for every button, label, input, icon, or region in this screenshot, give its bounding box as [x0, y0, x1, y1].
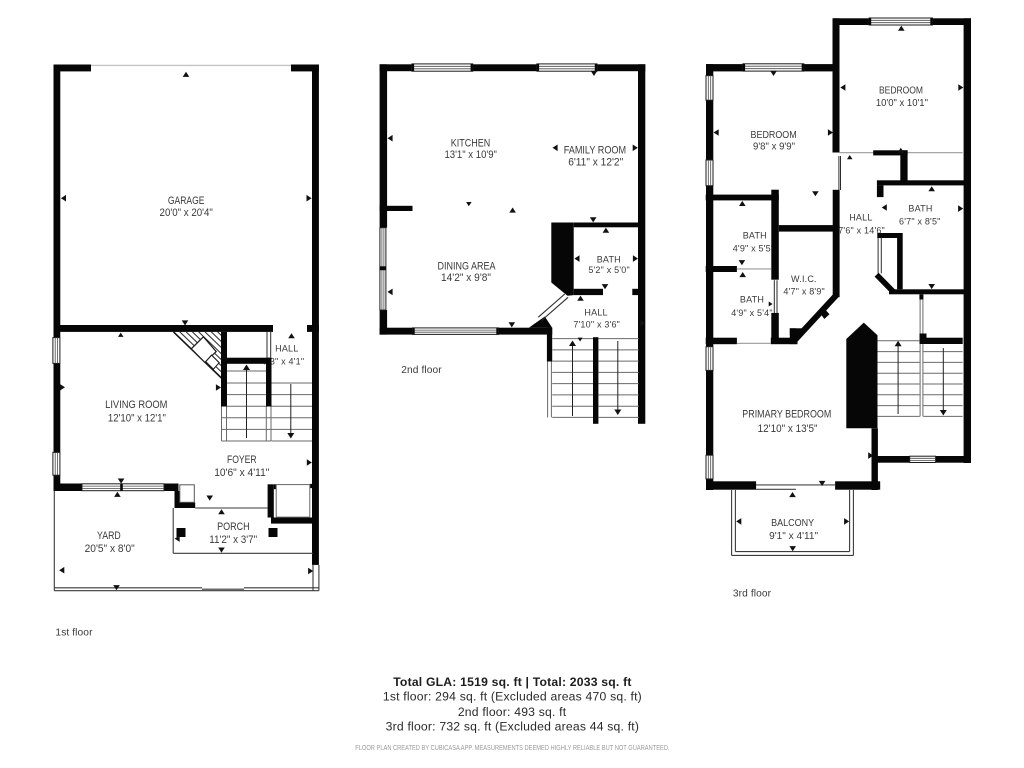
svg-text:GARAGE: GARAGE — [168, 195, 205, 207]
svg-text:4'7" x 8'9": 4'7" x 8'9" — [783, 287, 825, 297]
svg-text:PRIMARY BEDROOM: PRIMARY BEDROOM — [742, 408, 831, 420]
svg-text:6'7" x 8'5": 6'7" x 8'5" — [899, 217, 941, 227]
svg-text:KITCHEN: KITCHEN — [451, 138, 490, 150]
svg-text:FAMILY ROOM: FAMILY ROOM — [564, 145, 626, 157]
svg-text:7'10" x 3'6": 7'10" x 3'6" — [573, 320, 620, 330]
svg-text:Total GLA: 1519 sq. ft | Total: Total GLA: 1519 sq. ft | Total: 2033 sq.… — [393, 675, 631, 689]
svg-text:3rd floor: 3rd floor — [733, 589, 772, 600]
svg-text:BATH: BATH — [740, 295, 764, 305]
svg-text:1st floor: 294 sq. ft (Exclude: 1st floor: 294 sq. ft (Excluded areas 47… — [383, 689, 642, 703]
svg-text:14'2" x 9'8": 14'2" x 9'8" — [441, 272, 491, 284]
svg-text:4'9" x 5'5": 4'9" x 5'5" — [733, 244, 775, 254]
svg-text:BEDROOM: BEDROOM — [751, 130, 797, 141]
svg-text:1st floor: 1st floor — [55, 628, 93, 639]
svg-text:FOYER: FOYER — [227, 454, 257, 466]
svg-text:BATH: BATH — [597, 255, 621, 265]
svg-text:W.I.C.: W.I.C. — [791, 274, 817, 284]
svg-text:BALCONY: BALCONY — [771, 518, 814, 529]
svg-text:HALL: HALL — [849, 212, 872, 222]
svg-text:BATH: BATH — [743, 231, 767, 241]
svg-text:BEDROOM: BEDROOM — [879, 86, 923, 97]
svg-text:13'1" x 10'9": 13'1" x 10'9" — [444, 149, 497, 161]
svg-text:5'2" x 5'0": 5'2" x 5'0" — [588, 265, 630, 275]
svg-text:12'10" x 13'5": 12'10" x 13'5" — [758, 423, 818, 435]
svg-text:10'6" x 4'11": 10'6" x 4'11" — [214, 467, 269, 479]
svg-text:DINING AREA: DINING AREA — [438, 260, 497, 272]
svg-text:FLOOR PLAN CREATED BY CUBICASA: FLOOR PLAN CREATED BY CUBICASA APP. MEAS… — [355, 743, 669, 752]
svg-text:10'0" x 10'1": 10'0" x 10'1" — [876, 98, 928, 109]
svg-text:9'1" x 4'11": 9'1" x 4'11" — [769, 531, 818, 542]
svg-text:11'2" x 3'7": 11'2" x 3'7" — [209, 534, 257, 546]
svg-text:6'11" x 12'2": 6'11" x 12'2" — [568, 157, 623, 169]
svg-text:BATH: BATH — [908, 204, 932, 214]
svg-text:YARD: YARD — [97, 530, 121, 542]
svg-text:2nd floor: 2nd floor — [401, 365, 442, 376]
svg-text:3rd floor: 732 sq. ft (Exclude: 3rd floor: 732 sq. ft (Excluded areas 44… — [386, 720, 639, 734]
svg-text:2nd floor: 493 sq. ft: 2nd floor: 493 sq. ft — [458, 705, 567, 719]
svg-text:HALL: HALL — [584, 307, 607, 317]
svg-text:4'9" x 5'4": 4'9" x 5'4" — [731, 308, 773, 318]
svg-text:20'5" x 8'0": 20'5" x 8'0" — [85, 543, 135, 555]
svg-text:HALL: HALL — [275, 344, 298, 354]
svg-text:9'8" x 9'9": 9'8" x 9'9" — [753, 142, 795, 153]
svg-text:LIVING ROOM: LIVING ROOM — [105, 399, 167, 411]
svg-text:12'10" x 12'1": 12'10" x 12'1" — [108, 413, 166, 425]
svg-text:20'0" x 20'4": 20'0" x 20'4" — [160, 207, 213, 219]
svg-text:PORCH: PORCH — [217, 521, 250, 533]
